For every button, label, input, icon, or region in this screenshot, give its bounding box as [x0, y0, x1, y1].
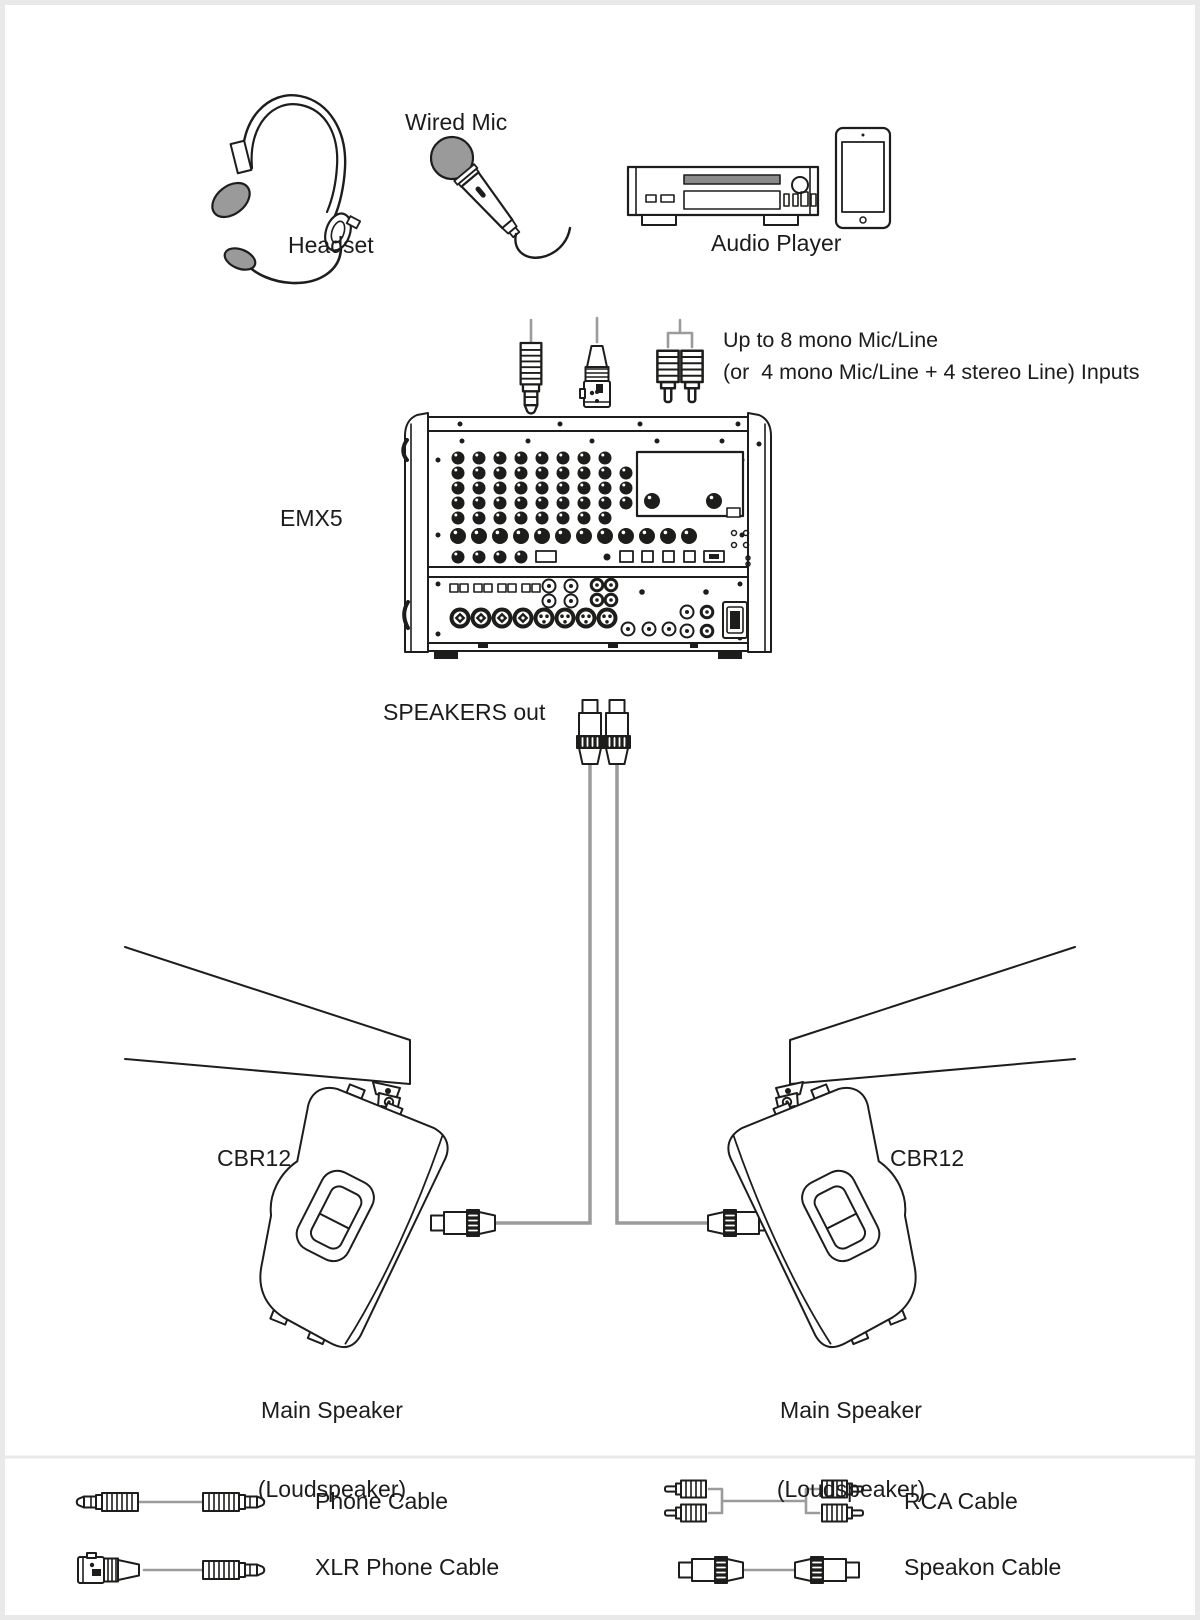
wired-mic-label: Wired Mic: [405, 109, 507, 135]
power-switch: [723, 602, 747, 638]
mixer-right-rail: [748, 413, 771, 652]
speakers-out-label: SPEAKERS out: [383, 699, 545, 725]
mixer-left-rail: [405, 413, 428, 652]
left-speaker-role-line1: Main Speaker: [212, 1397, 452, 1423]
xlr-phone-cable-icon: [78, 1553, 264, 1583]
speakon-out-connectors: [577, 700, 630, 764]
speaker-cables: [496, 764, 709, 1223]
left-speaker-model-label: CBR12: [217, 1145, 291, 1171]
input-cables: [531, 318, 692, 347]
tablet-icon: [836, 128, 890, 228]
speakon-cable-label: Speakon Cable: [904, 1554, 1061, 1580]
mixer-illustration: [403, 413, 771, 659]
inputs-note-line1: Up to 8 mono Mic/Line: [723, 328, 938, 353]
microphone-icon: [422, 128, 570, 257]
speakon-connector-left: [431, 1210, 495, 1236]
connection-diagram-page: Wired Mic Headset Audio Player Up to 8 m…: [0, 0, 1200, 1620]
phone-cable-label: Phone Cable: [315, 1488, 448, 1514]
left-speaker-illustration: [227, 1073, 458, 1361]
mixer-display: [637, 452, 743, 517]
mixer-control-panel: [428, 431, 750, 567]
mixer-knob-grid: [452, 452, 633, 525]
right-speaker-role-line1: Main Speaker: [731, 1397, 971, 1423]
phone-plug-icon: [521, 343, 542, 413]
cd-player-icon: [628, 167, 818, 225]
xlr-phone-cable-label: XLR Phone Cable: [315, 1554, 499, 1580]
rca-plug-icon: [657, 351, 702, 402]
right-mount-beam: [790, 947, 1075, 1084]
diagram-canvas: [0, 0, 1200, 1620]
audio-player-label: Audio Player: [711, 230, 841, 256]
mixer-rear-panel: [428, 577, 748, 643]
right-speaker-model-label: CBR12: [890, 1145, 964, 1171]
xlr-plug-icon: [580, 346, 610, 407]
headset-label: Headset: [288, 232, 374, 258]
rca-cable-label: RCA Cable: [904, 1488, 1018, 1514]
inputs-note-line2: (or 4 mono Mic/Line + 4 stereo Line) Inp…: [723, 360, 1139, 385]
mixer-model-label: EMX5: [280, 505, 343, 531]
speakon-cable-icon: [679, 1557, 859, 1583]
left-mount-beam: [125, 947, 410, 1084]
